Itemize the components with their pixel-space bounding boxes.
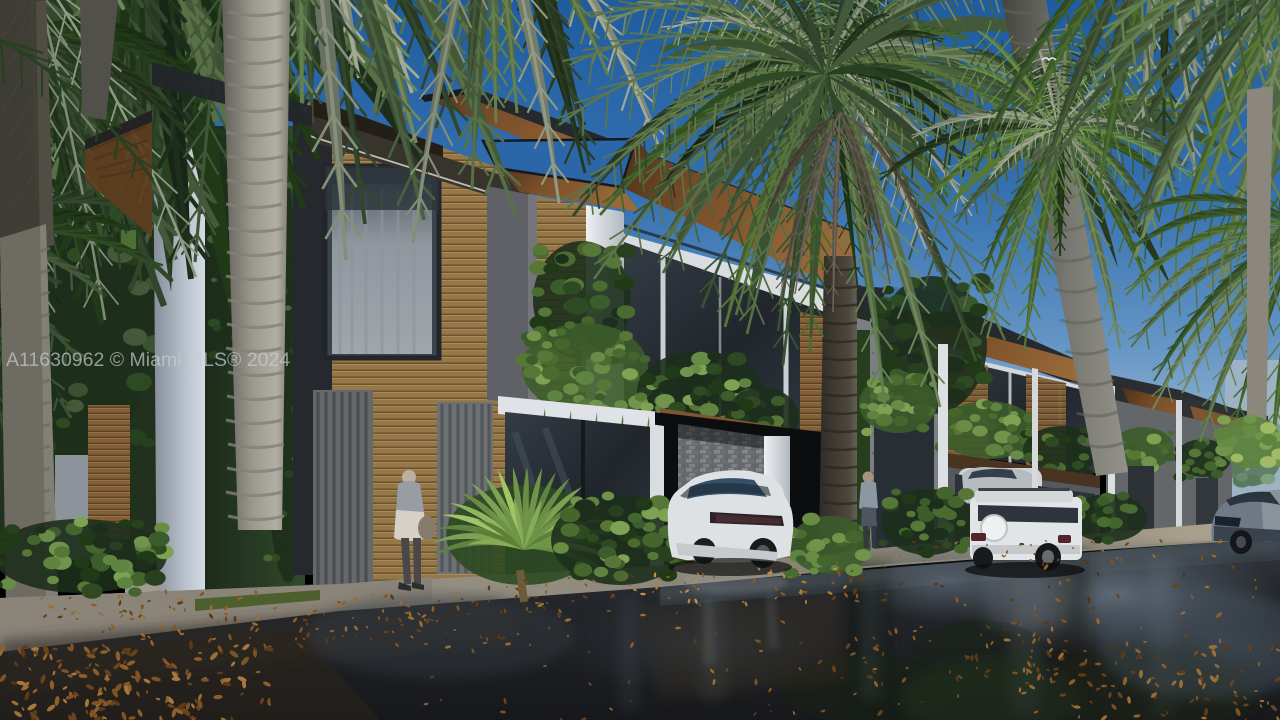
svg-text:A11630962 © Miami MLS® 2024: A11630962 © Miami MLS® 2024	[6, 349, 290, 371]
